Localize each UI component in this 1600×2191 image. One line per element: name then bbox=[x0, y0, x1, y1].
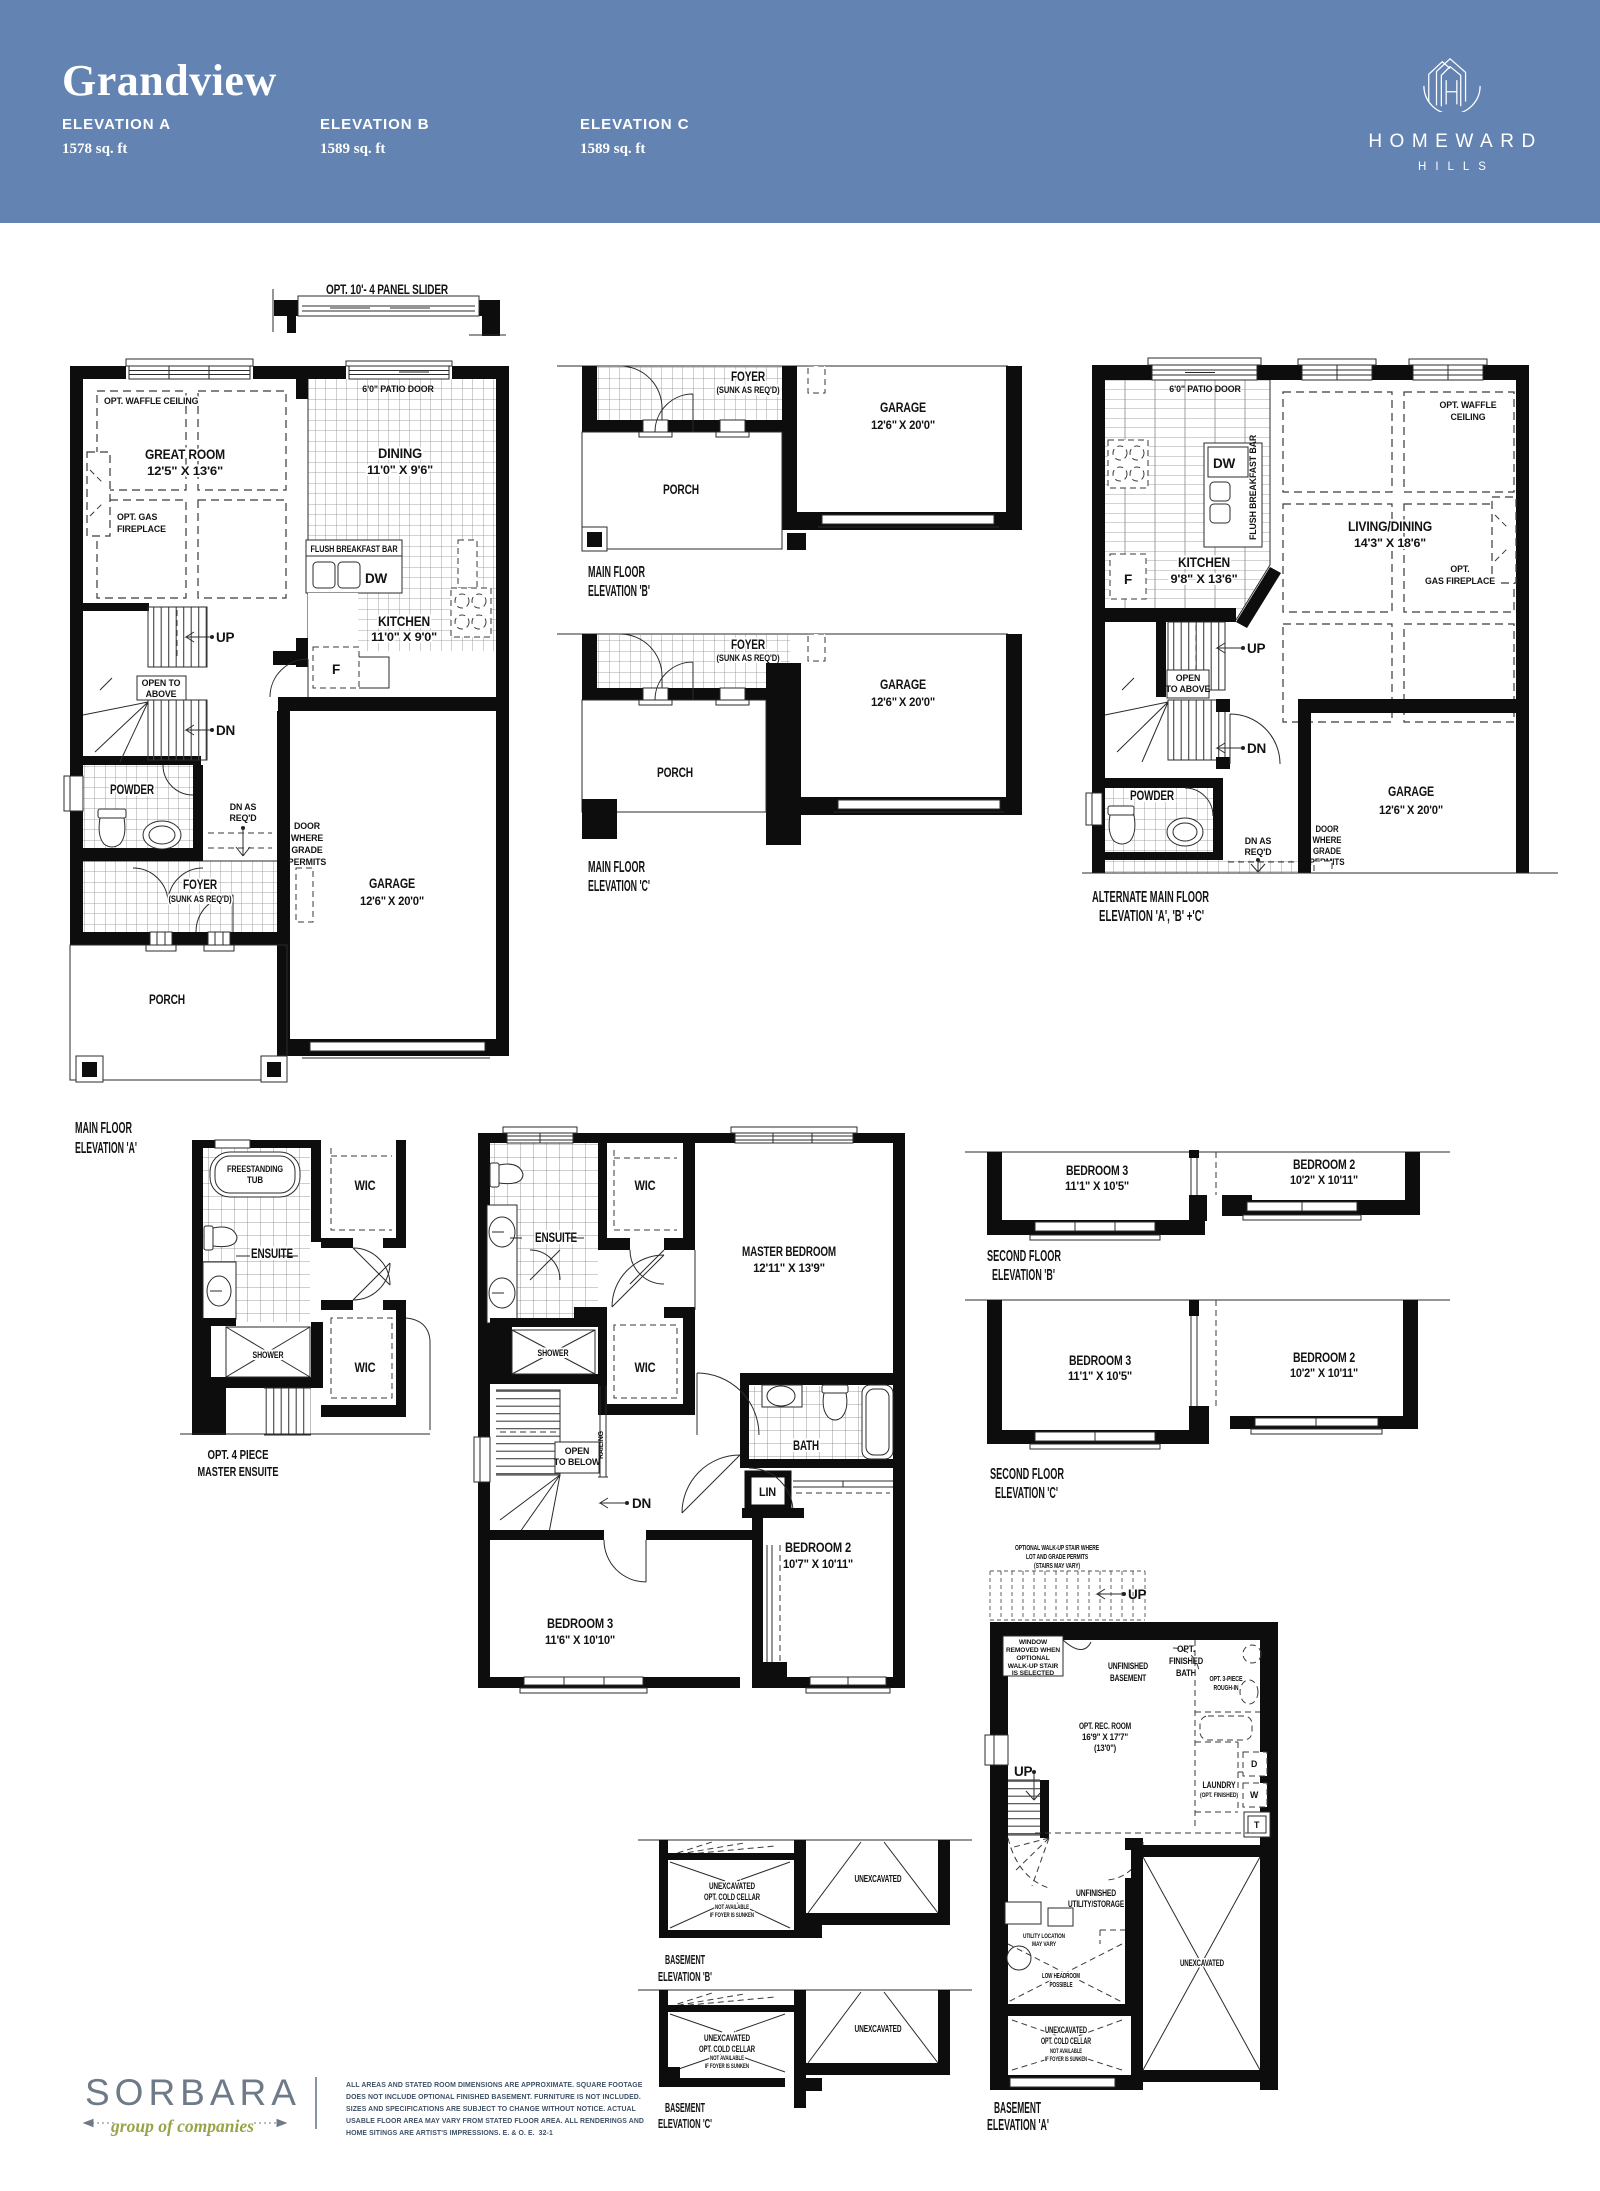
svg-text:UNFINISHED: UNFINISHED bbox=[1108, 1661, 1148, 1672]
svg-text:ABOVE: ABOVE bbox=[146, 689, 177, 699]
svg-text:11'0" X 9'0": 11'0" X 9'0" bbox=[371, 632, 437, 644]
svg-text:BATH: BATH bbox=[793, 1438, 819, 1453]
svg-text:UP: UP bbox=[1128, 1587, 1147, 1602]
svg-text:REQ'D: REQ'D bbox=[229, 813, 256, 823]
svg-text:BASEMENT: BASEMENT bbox=[665, 2100, 705, 2115]
svg-text:KITCHEN: KITCHEN bbox=[1178, 555, 1230, 570]
svg-text:TO ABOVE: TO ABOVE bbox=[1166, 684, 1211, 694]
svg-text:NOT AVAILABLE: NOT AVAILABLE bbox=[1050, 2048, 1082, 2055]
svg-text:12'11" X 13'9": 12'11" X 13'9" bbox=[753, 1263, 825, 1275]
svg-text:DN: DN bbox=[1247, 741, 1266, 756]
svg-text:UNEXCAVATED: UNEXCAVATED bbox=[1045, 2025, 1087, 2035]
svg-text:SECOND FLOOR: SECOND FLOOR bbox=[990, 1466, 1064, 1483]
svg-text:POSSIBLE: POSSIBLE bbox=[1050, 1980, 1073, 1989]
svg-text:GARAGE: GARAGE bbox=[880, 400, 926, 415]
svg-text:11'6" X 10'10": 11'6" X 10'10" bbox=[545, 1635, 615, 1647]
svg-text:LIN: LIN bbox=[759, 1487, 776, 1499]
svg-text:LOT AND GRADE PERMITS: LOT AND GRADE PERMITS bbox=[1026, 1552, 1088, 1561]
svg-text:OPT. COLD CELLAR: OPT. COLD CELLAR bbox=[1041, 2036, 1091, 2046]
svg-text:WHERE: WHERE bbox=[291, 833, 323, 843]
svg-text:BEDROOM 2: BEDROOM 2 bbox=[1293, 1350, 1355, 1365]
svg-text:ELEVATION 'A': ELEVATION 'A' bbox=[75, 1140, 137, 1157]
svg-text:F: F bbox=[1124, 572, 1132, 587]
svg-text:16'9" X 17'7": 16'9" X 17'7" bbox=[1082, 1732, 1128, 1743]
svg-text:10'2" X 10'11": 10'2" X 10'11" bbox=[1290, 1175, 1358, 1187]
svg-text:OPTIONAL: OPTIONAL bbox=[1016, 1655, 1049, 1662]
svg-text:MASTER BEDROOM: MASTER BEDROOM bbox=[742, 1244, 836, 1259]
svg-text:ELEVATION 'B': ELEVATION 'B' bbox=[588, 583, 650, 600]
svg-text:LAUNDRY: LAUNDRY bbox=[1203, 1780, 1236, 1790]
svg-text:MAIN FLOOR: MAIN FLOOR bbox=[588, 564, 645, 581]
svg-text:14'3" X 18'6": 14'3" X 18'6" bbox=[1354, 538, 1426, 550]
svg-text:OPT. GAS: OPT. GAS bbox=[117, 512, 157, 522]
svg-text:ENSUITE: ENSUITE bbox=[251, 1246, 293, 1261]
svg-text:OPTIONAL WALK-UP STAIR WHERE: OPTIONAL WALK-UP STAIR WHERE bbox=[1015, 1543, 1099, 1552]
svg-text:9'8" X 13'6": 9'8" X 13'6" bbox=[1171, 574, 1238, 586]
svg-text:OPT. WAFFLE: OPT. WAFFLE bbox=[1439, 400, 1496, 410]
svg-text:LOW HEADROOM: LOW HEADROOM bbox=[1042, 1971, 1080, 1980]
svg-text:OPEN: OPEN bbox=[565, 1446, 590, 1456]
svg-text:10'7" X 10'11": 10'7" X 10'11" bbox=[783, 1559, 853, 1571]
svg-text:OPT. COLD CELLAR: OPT. COLD CELLAR bbox=[704, 1892, 760, 1902]
svg-text:W: W bbox=[1250, 1790, 1259, 1800]
svg-text:IF FOYER IS SUNKEN: IF FOYER IS SUNKEN bbox=[1045, 2056, 1087, 2063]
svg-text:WIC: WIC bbox=[635, 1360, 656, 1375]
svg-text:REQ'D: REQ'D bbox=[1244, 847, 1271, 857]
svg-text:11'0" X 9'6": 11'0" X 9'6" bbox=[367, 465, 433, 477]
svg-text:(STAIRS MAY VARY): (STAIRS MAY VARY) bbox=[1034, 1561, 1080, 1570]
svg-text:T: T bbox=[1254, 1820, 1260, 1830]
svg-text:BEDROOM 3: BEDROOM 3 bbox=[1069, 1353, 1132, 1368]
svg-text:UTILITY LOCATION: UTILITY LOCATION bbox=[1023, 1933, 1065, 1940]
svg-text:CEILING: CEILING bbox=[1451, 412, 1486, 422]
svg-text:ELEVATION 'C': ELEVATION 'C' bbox=[658, 2116, 712, 2131]
svg-text:GAS FIREPLACE: GAS FIREPLACE bbox=[1425, 576, 1495, 586]
svg-text:WIC: WIC bbox=[355, 1178, 376, 1193]
svg-text:(13'0"): (13'0") bbox=[1094, 1743, 1116, 1754]
svg-text:FIREPLACE: FIREPLACE bbox=[117, 524, 166, 534]
svg-text:IS SELECTED: IS SELECTED bbox=[1012, 1670, 1054, 1677]
svg-text:BASEMENT: BASEMENT bbox=[665, 1952, 705, 1967]
svg-text:SHOWER: SHOWER bbox=[538, 1348, 570, 1358]
svg-text:GARAGE: GARAGE bbox=[1388, 784, 1434, 799]
svg-text:OPEN: OPEN bbox=[1176, 673, 1201, 683]
svg-text:PORCH: PORCH bbox=[657, 765, 693, 780]
svg-text:DN AS: DN AS bbox=[230, 802, 257, 812]
svg-text:ELEVATION 'A': ELEVATION 'A' bbox=[987, 2117, 1049, 2134]
svg-text:UNEXCAVATED: UNEXCAVATED bbox=[709, 1881, 755, 1891]
svg-text:F: F bbox=[332, 662, 340, 677]
svg-text:D: D bbox=[1251, 1759, 1257, 1769]
svg-text:GARAGE: GARAGE bbox=[880, 677, 926, 692]
svg-text:FOYER: FOYER bbox=[731, 637, 765, 652]
svg-text:IF FOYER IS SUNKEN: IF FOYER IS SUNKEN bbox=[710, 1912, 754, 1919]
svg-text:WIC: WIC bbox=[355, 1360, 376, 1375]
svg-text:OPT. 4 PIECE: OPT. 4 PIECE bbox=[208, 1447, 269, 1462]
svg-text:(SUNK AS REQ'D): (SUNK AS REQ'D) bbox=[717, 385, 780, 395]
svg-text:UNEXCAVATED: UNEXCAVATED bbox=[855, 2024, 902, 2035]
svg-text:DINING: DINING bbox=[378, 446, 422, 461]
svg-text:PERMITS: PERMITS bbox=[288, 857, 327, 867]
svg-text:WIC: WIC bbox=[635, 1178, 656, 1193]
svg-text:GREAT ROOM: GREAT ROOM bbox=[145, 447, 225, 462]
svg-text:POWDER: POWDER bbox=[110, 782, 154, 797]
svg-text:OPEN TO: OPEN TO bbox=[142, 678, 181, 688]
svg-text:OPT. 10'- 4 PANEL SLIDER: OPT. 10'- 4 PANEL SLIDER bbox=[326, 282, 448, 297]
svg-text:ELEVATION 'B': ELEVATION 'B' bbox=[992, 1267, 1055, 1284]
svg-text:POWDER: POWDER bbox=[1130, 788, 1174, 803]
svg-text:6'0" PATIO DOOR: 6'0" PATIO DOOR bbox=[1169, 384, 1241, 394]
svg-text:DOOR: DOOR bbox=[1316, 824, 1340, 834]
svg-text:FOYER: FOYER bbox=[731, 369, 765, 384]
svg-text:GARAGE: GARAGE bbox=[369, 876, 415, 891]
svg-text:(SUNK AS REQ'D): (SUNK AS REQ'D) bbox=[169, 894, 232, 904]
svg-text:KITCHEN: KITCHEN bbox=[378, 614, 430, 629]
svg-text:UNEXCAVATED: UNEXCAVATED bbox=[1180, 1958, 1224, 1969]
svg-text:ELEVATION 'B': ELEVATION 'B' bbox=[658, 1969, 712, 1984]
svg-text:FLUSH BREAKFAST BAR: FLUSH BREAKFAST BAR bbox=[1248, 434, 1258, 540]
svg-text:FOYER: FOYER bbox=[183, 877, 217, 892]
svg-text:UP: UP bbox=[1247, 641, 1266, 656]
svg-text:IF FOYER IS SUNKEN: IF FOYER IS SUNKEN bbox=[705, 2063, 749, 2070]
svg-text:12'6" X 20'0": 12'6" X 20'0" bbox=[871, 697, 935, 709]
svg-text:WHERE: WHERE bbox=[1313, 835, 1342, 845]
svg-text:UP: UP bbox=[1014, 1764, 1033, 1779]
svg-text:DN AS: DN AS bbox=[1245, 836, 1272, 846]
svg-text:11'1" X 10'5": 11'1" X 10'5" bbox=[1068, 1371, 1132, 1383]
svg-text:NOT AVAILABLE: NOT AVAILABLE bbox=[715, 1904, 749, 1911]
svg-text:12'6" X 20'0": 12'6" X 20'0" bbox=[871, 420, 935, 432]
svg-text:REMOVED WHEN: REMOVED WHEN bbox=[1006, 1647, 1060, 1654]
svg-text:UTILITY/STORAGE: UTILITY/STORAGE bbox=[1068, 1899, 1125, 1910]
svg-text:OPT.: OPT. bbox=[1177, 1644, 1195, 1655]
svg-text:DN: DN bbox=[216, 723, 235, 738]
svg-text:MAY VARY: MAY VARY bbox=[1032, 1941, 1056, 1948]
svg-text:DOOR: DOOR bbox=[294, 821, 321, 831]
svg-text:GRADE: GRADE bbox=[291, 845, 323, 855]
svg-text:11'1" X 10'5": 11'1" X 10'5" bbox=[1065, 1181, 1129, 1193]
svg-text:GRADE: GRADE bbox=[1313, 846, 1341, 856]
svg-text:FREESTANDING: FREESTANDING bbox=[227, 1164, 283, 1174]
svg-text:ALTERNATE MAIN FLOOR: ALTERNATE MAIN FLOOR bbox=[1092, 889, 1209, 906]
svg-text:MASTER ENSUITE: MASTER ENSUITE bbox=[198, 1464, 279, 1479]
svg-text:OPT. WAFFLE CEILING: OPT. WAFFLE CEILING bbox=[104, 396, 199, 406]
svg-text:ELEVATION 'A', 'B' +'C': ELEVATION 'A', 'B' +'C' bbox=[1099, 908, 1204, 925]
svg-text:MAIN FLOOR: MAIN FLOOR bbox=[588, 859, 645, 876]
svg-text:ROUGH-IN: ROUGH-IN bbox=[1214, 1683, 1239, 1692]
svg-text:OPT. REC. ROOM: OPT. REC. ROOM bbox=[1079, 1721, 1131, 1732]
svg-text:PORCH: PORCH bbox=[663, 482, 699, 497]
svg-text:PORCH: PORCH bbox=[149, 992, 185, 1007]
svg-text:UP: UP bbox=[216, 630, 235, 645]
svg-text:6'0" PATIO DOOR: 6'0" PATIO DOOR bbox=[362, 384, 434, 394]
svg-text:SECOND FLOOR: SECOND FLOOR bbox=[987, 1248, 1061, 1265]
svg-text:12'6" X 20'0": 12'6" X 20'0" bbox=[360, 896, 424, 908]
svg-text:DW: DW bbox=[1213, 456, 1236, 471]
svg-text:UNEXCAVATED: UNEXCAVATED bbox=[855, 1874, 902, 1885]
svg-text:BATH: BATH bbox=[1176, 1668, 1196, 1679]
svg-text:NOT AVAILABLE: NOT AVAILABLE bbox=[710, 2055, 744, 2062]
svg-text:BEDROOM 2: BEDROOM 2 bbox=[1293, 1157, 1355, 1172]
svg-text:BEDROOM 2: BEDROOM 2 bbox=[785, 1540, 851, 1555]
svg-text:BEDROOM 3: BEDROOM 3 bbox=[1066, 1163, 1129, 1178]
svg-text:(OPT. FINISHED): (OPT. FINISHED) bbox=[1200, 1792, 1238, 1799]
svg-text:OPT.: OPT. bbox=[1450, 564, 1469, 574]
svg-text:ELEVATION 'C': ELEVATION 'C' bbox=[588, 878, 650, 895]
svg-text:DN: DN bbox=[632, 1496, 651, 1511]
svg-text:UNFINISHED: UNFINISHED bbox=[1076, 1888, 1116, 1899]
svg-text:MAIN FLOOR: MAIN FLOOR bbox=[75, 1120, 132, 1137]
svg-text:BASEMENT: BASEMENT bbox=[1110, 1673, 1146, 1684]
svg-text:(SUNK AS REQ'D): (SUNK AS REQ'D) bbox=[717, 653, 780, 663]
svg-text:10'2" X 10'11": 10'2" X 10'11" bbox=[1290, 1368, 1358, 1380]
svg-text:12'5" X 13'6": 12'5" X 13'6" bbox=[147, 466, 223, 478]
svg-text:WALK-UP STAIR: WALK-UP STAIR bbox=[1008, 1663, 1059, 1670]
svg-text:OPT. COLD CELLAR: OPT. COLD CELLAR bbox=[699, 2044, 755, 2054]
svg-text:WINDOW: WINDOW bbox=[1019, 1639, 1048, 1646]
svg-text:FLUSH BREAKFAST BAR: FLUSH BREAKFAST BAR bbox=[311, 544, 399, 554]
svg-text:UNEXCAVATED: UNEXCAVATED bbox=[704, 2033, 750, 2043]
svg-text:ELEVATION 'C': ELEVATION 'C' bbox=[995, 1485, 1058, 1502]
svg-text:SHOWER: SHOWER bbox=[253, 1350, 285, 1360]
svg-text:12'6" X 20'0": 12'6" X 20'0" bbox=[1379, 805, 1443, 817]
svg-text:OPT. 3-PIECE: OPT. 3-PIECE bbox=[1210, 1674, 1243, 1683]
svg-text:LIVING/DINING: LIVING/DINING bbox=[1348, 519, 1432, 534]
svg-text:BEDROOM 3: BEDROOM 3 bbox=[547, 1616, 614, 1631]
svg-text:DW: DW bbox=[365, 571, 388, 586]
svg-text:TUB: TUB bbox=[247, 1175, 263, 1185]
svg-text:BASEMENT: BASEMENT bbox=[994, 2100, 1041, 2117]
svg-text:TO BELOW: TO BELOW bbox=[554, 1457, 601, 1467]
